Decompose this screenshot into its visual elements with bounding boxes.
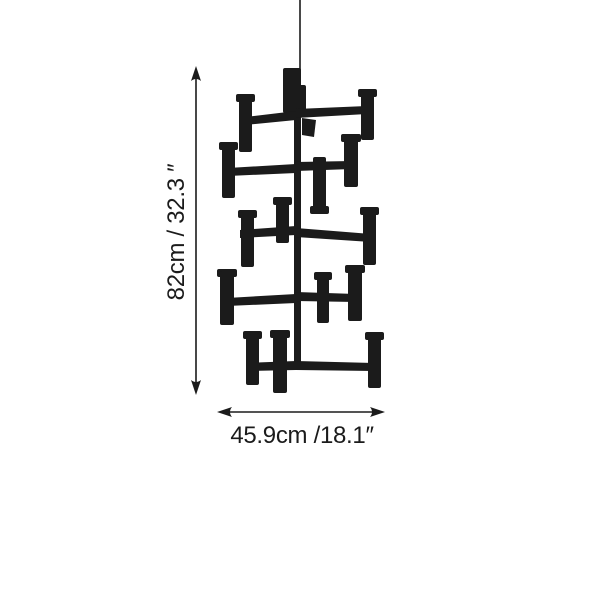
width-arrow-left-icon [217,407,232,417]
height-arrow-up-icon [191,66,201,81]
height-dimension-label: 82cm / 32.3 ″ [163,163,190,300]
width-arrow-right-icon [370,407,385,417]
product-dimension-diagram: 82cm / 32.3 ″ 45.9cm /18.1″ [0,0,600,600]
width-dimension-label: 45.9cm /18.1″ [230,422,374,449]
chandelier-silhouette [217,68,384,393]
height-arrow-down-icon [191,380,201,395]
